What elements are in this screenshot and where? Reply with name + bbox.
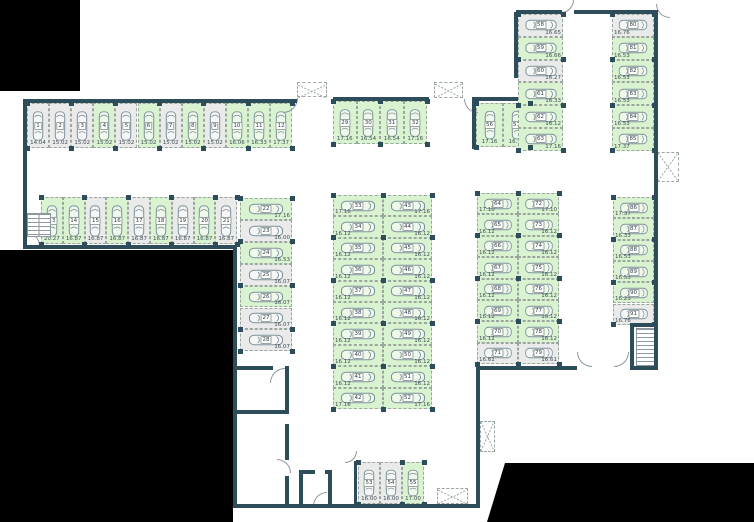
parking-stall-47[interactable]: 4716.12 bbox=[383, 281, 432, 302]
parking-stall-89[interactable]: 8916.53 bbox=[613, 261, 654, 282]
column-marker bbox=[39, 195, 44, 200]
stall-number: 83 bbox=[628, 90, 639, 98]
stall-number: 23 bbox=[261, 227, 272, 235]
stall-area: 17.16 bbox=[414, 402, 430, 408]
stall-area: 16.12 bbox=[414, 381, 430, 387]
parking-stall-33[interactable]: 3317.16 bbox=[333, 195, 383, 216]
stall-area: 16.87 bbox=[64, 236, 84, 242]
stall-area: 16.12 bbox=[479, 336, 495, 342]
column-marker bbox=[82, 242, 87, 247]
column-marker bbox=[39, 242, 44, 247]
parking-stall-37[interactable]: 3716.12 bbox=[333, 281, 383, 302]
column-marker bbox=[528, 145, 533, 150]
parking-stall-5[interactable]: 515.02 bbox=[115, 103, 137, 148]
stall-area: 16.53 bbox=[614, 53, 630, 59]
door-swing bbox=[277, 459, 291, 473]
column-marker bbox=[381, 364, 386, 369]
parking-stall-82[interactable]: 8216.53 bbox=[612, 60, 654, 83]
parking-stall-39[interactable]: 3916.12 bbox=[333, 323, 383, 344]
stall-number: 46 bbox=[402, 266, 413, 274]
wall bbox=[285, 424, 289, 460]
parking-stall-44[interactable]: 4416.12 bbox=[383, 216, 432, 237]
stall-number: 49 bbox=[402, 330, 413, 338]
column-marker bbox=[356, 460, 361, 465]
parking-stall-19[interactable]: 1916.87 bbox=[172, 197, 194, 244]
stall-number: 25 bbox=[261, 271, 272, 279]
column-marker bbox=[290, 196, 295, 201]
column-marker bbox=[213, 242, 218, 247]
stall-number: 64 bbox=[492, 200, 503, 208]
parking-stall-71[interactable]: 7116.61 bbox=[477, 343, 518, 364]
column-marker bbox=[652, 57, 657, 62]
stall-area: 16.27 bbox=[545, 75, 561, 81]
parking-stall-86[interactable]: 8617.37 bbox=[613, 197, 654, 218]
column-marker bbox=[290, 101, 295, 106]
shaft-box-icon bbox=[480, 421, 495, 452]
stall-number: 59 bbox=[535, 44, 546, 52]
column-marker bbox=[610, 148, 615, 153]
stall-number: 52 bbox=[402, 394, 413, 402]
stall-area: 16.00 bbox=[274, 235, 290, 241]
stall-number: 4 bbox=[101, 122, 109, 130]
parking-stall-6[interactable]: 615.02 bbox=[138, 103, 160, 148]
column-marker bbox=[475, 191, 480, 196]
parking-stall-35[interactable]: 3516.12 bbox=[333, 238, 383, 259]
stall-area: 16.12 bbox=[414, 338, 430, 344]
stall-area: 15.02 bbox=[72, 140, 92, 146]
wall bbox=[285, 476, 289, 508]
column-marker bbox=[474, 101, 479, 106]
column-marker bbox=[69, 101, 74, 106]
parking-stall-4[interactable]: 415.02 bbox=[93, 103, 115, 148]
stall-number: 40 bbox=[353, 351, 364, 359]
stall-number: 3 bbox=[78, 122, 86, 130]
parking-stall-63[interactable]: 6317.16 bbox=[518, 128, 563, 151]
stall-number: 80 bbox=[628, 21, 639, 29]
stall-number: 87 bbox=[628, 225, 639, 233]
column-marker bbox=[422, 460, 427, 465]
column-marker bbox=[561, 57, 566, 62]
stall-number: 71 bbox=[492, 349, 503, 357]
parking-stall-64[interactable]: 6417.10 bbox=[477, 193, 518, 214]
stall-number: 82 bbox=[628, 67, 639, 75]
parking-stall-51[interactable]: 5116.12 bbox=[383, 366, 432, 387]
stall-area: 16.12 bbox=[479, 229, 495, 235]
stall-number: 33 bbox=[353, 202, 364, 210]
parking-stall-55[interactable]: 5517.00 bbox=[402, 462, 424, 504]
column-marker bbox=[113, 101, 118, 106]
column-marker bbox=[290, 146, 295, 151]
column-marker bbox=[475, 362, 480, 367]
stall-number: 70 bbox=[492, 328, 503, 336]
column-marker bbox=[557, 276, 562, 281]
column-marker bbox=[381, 407, 386, 412]
column-marker bbox=[381, 278, 386, 283]
parking-stall-17[interactable]: 1716.87 bbox=[128, 197, 150, 244]
column-marker bbox=[475, 233, 480, 238]
parking-stall-60[interactable]: 6016.27 bbox=[518, 60, 563, 83]
parking-stall-74[interactable]: 7416.12 bbox=[518, 236, 559, 257]
column-marker bbox=[652, 237, 657, 242]
parking-stall-42[interactable]: 4217.16 bbox=[333, 388, 383, 409]
parking-stall-20[interactable]: 2016.87 bbox=[194, 197, 216, 244]
stall-number: 2 bbox=[56, 122, 64, 130]
stall-area: 17.37 bbox=[271, 140, 291, 146]
stall-number: 6 bbox=[145, 122, 153, 130]
stall-number: 81 bbox=[628, 44, 639, 52]
stall-area: 16.12 bbox=[479, 314, 495, 320]
stall-number: 54 bbox=[386, 479, 397, 487]
parking-stall-66[interactable]: 6616.12 bbox=[477, 236, 518, 257]
column-marker bbox=[238, 239, 243, 244]
parking-stall-58[interactable]: 5816.65 bbox=[518, 14, 563, 37]
parking-stall-87[interactable]: 8716.33 bbox=[613, 218, 654, 239]
column-marker bbox=[381, 235, 386, 240]
column-marker bbox=[238, 196, 243, 201]
parking-stall-65[interactable]: 6516.12 bbox=[477, 214, 518, 235]
stall-number: 17 bbox=[134, 217, 145, 225]
stall-area: 16.12 bbox=[335, 338, 351, 344]
parking-stall-21[interactable]: 2116.87 bbox=[215, 197, 237, 244]
column-marker bbox=[82, 195, 87, 200]
parking-stall-84[interactable]: 8416.53 bbox=[612, 105, 654, 128]
column-marker bbox=[425, 142, 430, 147]
parking-stall-76[interactable]: 7616.12 bbox=[518, 279, 559, 300]
parking-stall-61[interactable]: 6116.33 bbox=[518, 82, 563, 105]
stall-number: 30 bbox=[363, 119, 374, 127]
shaft-box-icon bbox=[434, 82, 463, 98]
column-marker bbox=[557, 319, 562, 324]
column-marker bbox=[610, 103, 615, 108]
parking-stall-28[interactable]: 2816.07 bbox=[240, 329, 292, 351]
column-marker bbox=[25, 146, 30, 151]
parking-stall-32[interactable]: 3217.16 bbox=[404, 101, 428, 144]
stall-area: 15.02 bbox=[205, 140, 225, 146]
column-marker bbox=[331, 321, 336, 326]
wall bbox=[574, 10, 658, 14]
stall-area: 16.12 bbox=[479, 293, 495, 299]
stall-area: 16.12 bbox=[335, 252, 351, 258]
column-marker bbox=[290, 349, 295, 354]
wall bbox=[472, 97, 518, 101]
wall bbox=[654, 12, 658, 370]
wall bbox=[516, 10, 562, 14]
parking-stall-52[interactable]: 5217.16 bbox=[383, 388, 432, 409]
parking-stall-83[interactable]: 8316.53 bbox=[612, 82, 654, 105]
column-marker bbox=[400, 460, 405, 465]
wall bbox=[23, 99, 27, 249]
parking-stall-24[interactable]: 2416.53 bbox=[240, 242, 292, 264]
column-marker bbox=[381, 321, 386, 326]
parking-stall-73[interactable]: 7316.12 bbox=[518, 214, 559, 235]
shaft-box-icon bbox=[297, 82, 327, 97]
wall bbox=[354, 461, 357, 504]
parking-stall-22[interactable]: 2217.16 bbox=[240, 198, 292, 220]
parking-stall-15[interactable]: 1516.87 bbox=[85, 197, 107, 244]
stall-number: 74 bbox=[533, 242, 544, 250]
parking-stall-53[interactable]: 5316.00 bbox=[358, 462, 380, 504]
stall-area: 15.02 bbox=[183, 140, 203, 146]
parking-stall-67[interactable]: 6716.12 bbox=[477, 257, 518, 278]
parking-stall-90[interactable]: 9016.23 bbox=[613, 282, 654, 303]
parking-stall-41[interactable]: 4116.12 bbox=[333, 366, 383, 387]
parking-stall-72[interactable]: 7217.10 bbox=[518, 193, 559, 214]
stall-area: 16.12 bbox=[541, 293, 557, 299]
column-marker bbox=[611, 195, 616, 200]
parking-stall-91[interactable]: 9116.76 bbox=[613, 304, 654, 325]
parking-stall-11[interactable]: 1116.33 bbox=[248, 103, 270, 148]
stall-area: 16.06 bbox=[227, 140, 247, 146]
stall-number: 8 bbox=[189, 122, 197, 130]
stall-area: 16.23 bbox=[615, 296, 631, 302]
column-marker bbox=[516, 12, 521, 17]
column-marker bbox=[400, 502, 405, 507]
stall-number: 19 bbox=[177, 217, 188, 225]
stall-area: 17.16 bbox=[274, 213, 290, 219]
stall-number: 60 bbox=[535, 67, 546, 75]
column-marker bbox=[430, 407, 435, 412]
stall-area: 16.76 bbox=[614, 30, 630, 36]
column-marker bbox=[238, 283, 243, 288]
column-marker bbox=[610, 12, 615, 17]
stall-number: 31 bbox=[386, 119, 397, 127]
stall-number: 62 bbox=[535, 113, 546, 121]
stall-area: 16.07 bbox=[274, 300, 290, 306]
stall-number: 10 bbox=[231, 122, 242, 130]
stall-number: 45 bbox=[402, 244, 413, 252]
column-marker bbox=[290, 239, 295, 244]
stall-number: 69 bbox=[492, 307, 503, 315]
parking-stall-9[interactable]: 915.02 bbox=[204, 103, 226, 148]
stall-area: 15.02 bbox=[139, 140, 159, 146]
column-marker bbox=[246, 146, 251, 151]
column-marker bbox=[331, 407, 336, 412]
parking-stall-27[interactable]: 2716.07 bbox=[240, 308, 292, 330]
stall-area: 16.65 bbox=[545, 30, 561, 36]
parking-stall-49[interactable]: 4916.12 bbox=[383, 323, 432, 344]
parking-stall-3[interactable]: 315.02 bbox=[71, 103, 93, 148]
wall bbox=[630, 323, 634, 370]
stall-area: 16.33 bbox=[545, 98, 561, 104]
stall-number: 29 bbox=[339, 119, 350, 127]
stall-number: 61 bbox=[535, 90, 546, 98]
stall-area: 16.00 bbox=[359, 496, 379, 502]
column-marker bbox=[422, 502, 427, 507]
stall-number: 75 bbox=[533, 264, 544, 272]
column-marker bbox=[331, 99, 336, 104]
stall-number: 11 bbox=[254, 122, 265, 130]
parking-stall-77[interactable]: 7716.12 bbox=[518, 300, 559, 321]
wall bbox=[233, 410, 289, 414]
column-marker bbox=[611, 237, 616, 242]
stall-area: 16.54 bbox=[381, 136, 403, 142]
column-marker bbox=[561, 12, 566, 17]
parking-stall-34[interactable]: 3416.12 bbox=[333, 216, 383, 237]
column-marker bbox=[238, 349, 243, 354]
column-marker bbox=[652, 195, 657, 200]
stall-number: 20 bbox=[199, 217, 210, 225]
stall-number: 79 bbox=[533, 349, 544, 357]
parking-stall-1[interactable]: 114.04 bbox=[27, 103, 49, 148]
parking-stall-29[interactable]: 2917.16 bbox=[333, 101, 357, 144]
stall-number: 63 bbox=[535, 135, 546, 143]
column-marker bbox=[69, 146, 74, 151]
column-marker bbox=[557, 362, 562, 367]
stall-area: 16.12 bbox=[545, 121, 561, 127]
column-marker bbox=[652, 280, 657, 285]
stall-area: 16.61 bbox=[479, 357, 495, 363]
parking-stall-59[interactable]: 5916.66 bbox=[518, 37, 563, 60]
column-marker bbox=[430, 235, 435, 240]
column-marker bbox=[652, 148, 657, 153]
stall-number: 42 bbox=[353, 394, 364, 402]
column-marker bbox=[557, 191, 562, 196]
stall-number: 22 bbox=[261, 205, 272, 213]
stall-area: 16.53 bbox=[614, 121, 630, 127]
parking-stall-14[interactable]: 1416.87 bbox=[63, 197, 85, 244]
stall-number: 89 bbox=[628, 268, 639, 276]
column-marker bbox=[169, 195, 174, 200]
stall-area: 15.02 bbox=[94, 140, 114, 146]
parking-stall-40[interactable]: 4016.12 bbox=[333, 345, 383, 366]
stall-number: 88 bbox=[628, 246, 639, 254]
parking-stall-36[interactable]: 3616.12 bbox=[333, 259, 383, 280]
stall-number: 21 bbox=[221, 217, 232, 225]
column-marker bbox=[25, 101, 30, 106]
stall-area: 17.37 bbox=[614, 144, 630, 150]
stall-number: 65 bbox=[492, 221, 503, 229]
parking-stall-48[interactable]: 4816.12 bbox=[383, 302, 432, 323]
parking-stall-70[interactable]: 7016.12 bbox=[477, 321, 518, 342]
parking-stall-45[interactable]: 4516.12 bbox=[383, 238, 432, 259]
door-swing bbox=[577, 352, 592, 367]
parking-stall-85[interactable]: 8517.37 bbox=[612, 128, 654, 151]
parking-stall-75[interactable]: 7516.12 bbox=[518, 257, 559, 278]
parking-stall-38[interactable]: 3816.12 bbox=[333, 302, 383, 323]
wall bbox=[514, 12, 518, 78]
stall-area: 16.12 bbox=[479, 250, 495, 256]
stall-area: 16.53 bbox=[274, 257, 290, 263]
stall-number: 55 bbox=[408, 479, 419, 487]
column-marker bbox=[201, 101, 206, 106]
parking-stall-8[interactable]: 815.02 bbox=[182, 103, 204, 148]
stall-area: 15.02 bbox=[161, 140, 181, 146]
stall-area: 17.16 bbox=[545, 144, 561, 150]
column-marker bbox=[356, 502, 361, 507]
door-swing bbox=[656, 4, 670, 18]
column-marker bbox=[290, 283, 295, 288]
parking-stall-79[interactable]: 7916.61 bbox=[518, 343, 559, 364]
parking-stall-68[interactable]: 6816.12 bbox=[477, 279, 518, 300]
column-marker bbox=[169, 242, 174, 247]
column-marker bbox=[516, 191, 521, 196]
wall bbox=[233, 245, 237, 508]
stall-number: 78 bbox=[533, 328, 544, 336]
stall-area: 16.12 bbox=[335, 359, 351, 365]
parking-stall-78[interactable]: 7816.12 bbox=[518, 321, 559, 342]
stall-number: 48 bbox=[402, 309, 413, 317]
parking-stall-18[interactable]: 1816.87 bbox=[150, 197, 172, 244]
stall-area: 16.12 bbox=[335, 381, 351, 387]
stall-number: 86 bbox=[628, 204, 639, 212]
column-marker bbox=[213, 195, 218, 200]
parking-stall-43[interactable]: 4317.16 bbox=[383, 195, 432, 216]
parking-stall-81[interactable]: 8116.53 bbox=[612, 37, 654, 60]
parking-stall-88[interactable]: 8816.53 bbox=[613, 240, 654, 261]
parking-stall-25[interactable]: 2516.07 bbox=[240, 264, 292, 286]
parking-stall-46[interactable]: 4616.12 bbox=[383, 259, 432, 280]
parking-stall-56[interactable]: 5617.16 bbox=[476, 103, 503, 147]
stall-area: 16.53 bbox=[614, 98, 630, 104]
parking-stall-10[interactable]: 1016.06 bbox=[226, 103, 248, 148]
stall-number: 26 bbox=[261, 293, 272, 301]
column-marker bbox=[246, 101, 251, 106]
column-marker bbox=[126, 195, 131, 200]
parking-stall-16[interactable]: 1616.87 bbox=[106, 197, 128, 244]
column-marker bbox=[561, 148, 566, 153]
stall-number: 47 bbox=[402, 287, 413, 295]
parking-stall-7[interactable]: 715.02 bbox=[160, 103, 182, 148]
stall-number: 41 bbox=[353, 373, 364, 381]
stall-number: 72 bbox=[533, 200, 544, 208]
parking-stall-62[interactable]: 6216.12 bbox=[518, 105, 563, 128]
stall-area: 16.87 bbox=[107, 236, 127, 242]
parking-stall-69[interactable]: 6916.12 bbox=[477, 300, 518, 321]
stall-area: 16.12 bbox=[541, 336, 557, 342]
parking-stall-80[interactable]: 8016.76 bbox=[612, 14, 654, 37]
stall-number: 1 bbox=[34, 122, 42, 130]
column-marker bbox=[611, 280, 616, 285]
stall-number: 14 bbox=[68, 217, 79, 225]
stairs-icon bbox=[27, 213, 51, 237]
stall-area: 16.53 bbox=[614, 75, 630, 81]
stall-area: 16.87 bbox=[151, 236, 171, 242]
stall-number: 50 bbox=[402, 351, 413, 359]
parking-stall-2[interactable]: 215.02 bbox=[49, 103, 71, 148]
stall-area: 16.12 bbox=[541, 250, 557, 256]
stall-area: 16.12 bbox=[335, 295, 351, 301]
parking-stall-23[interactable]: 2316.00 bbox=[240, 220, 292, 242]
parking-stall-54[interactable]: 5416.00 bbox=[380, 462, 402, 504]
stall-area: 16.12 bbox=[414, 295, 430, 301]
stall-area: 16.07 bbox=[274, 344, 290, 350]
column-marker bbox=[331, 364, 336, 369]
stall-area: 17.10 bbox=[541, 207, 557, 213]
stall-area: 16.87 bbox=[86, 236, 106, 242]
stall-area: 16.12 bbox=[335, 316, 351, 322]
stall-number: 77 bbox=[533, 307, 544, 315]
stall-area: 16.87 bbox=[173, 236, 193, 242]
door-swing bbox=[270, 368, 285, 383]
stall-area: 14.04 bbox=[28, 140, 48, 146]
wall bbox=[476, 366, 577, 370]
column-marker bbox=[611, 322, 616, 327]
column-marker bbox=[652, 103, 657, 108]
column-marker bbox=[557, 233, 562, 238]
parking-stall-30[interactable]: 3016.54 bbox=[357, 101, 381, 144]
parking-stall-50[interactable]: 5016.12 bbox=[383, 345, 432, 366]
column-marker bbox=[290, 327, 295, 332]
parking-stall-26[interactable]: 2616.07 bbox=[240, 286, 292, 308]
column-marker bbox=[475, 319, 480, 324]
stall-area: 16.12 bbox=[414, 316, 430, 322]
stall-number: 35 bbox=[353, 244, 364, 252]
stall-area: 16.12 bbox=[414, 359, 430, 365]
stall-area: 16.12 bbox=[541, 272, 557, 278]
column-marker bbox=[238, 327, 243, 332]
parking-stall-31[interactable]: 3116.54 bbox=[380, 101, 404, 144]
stall-number: 43 bbox=[402, 202, 413, 210]
